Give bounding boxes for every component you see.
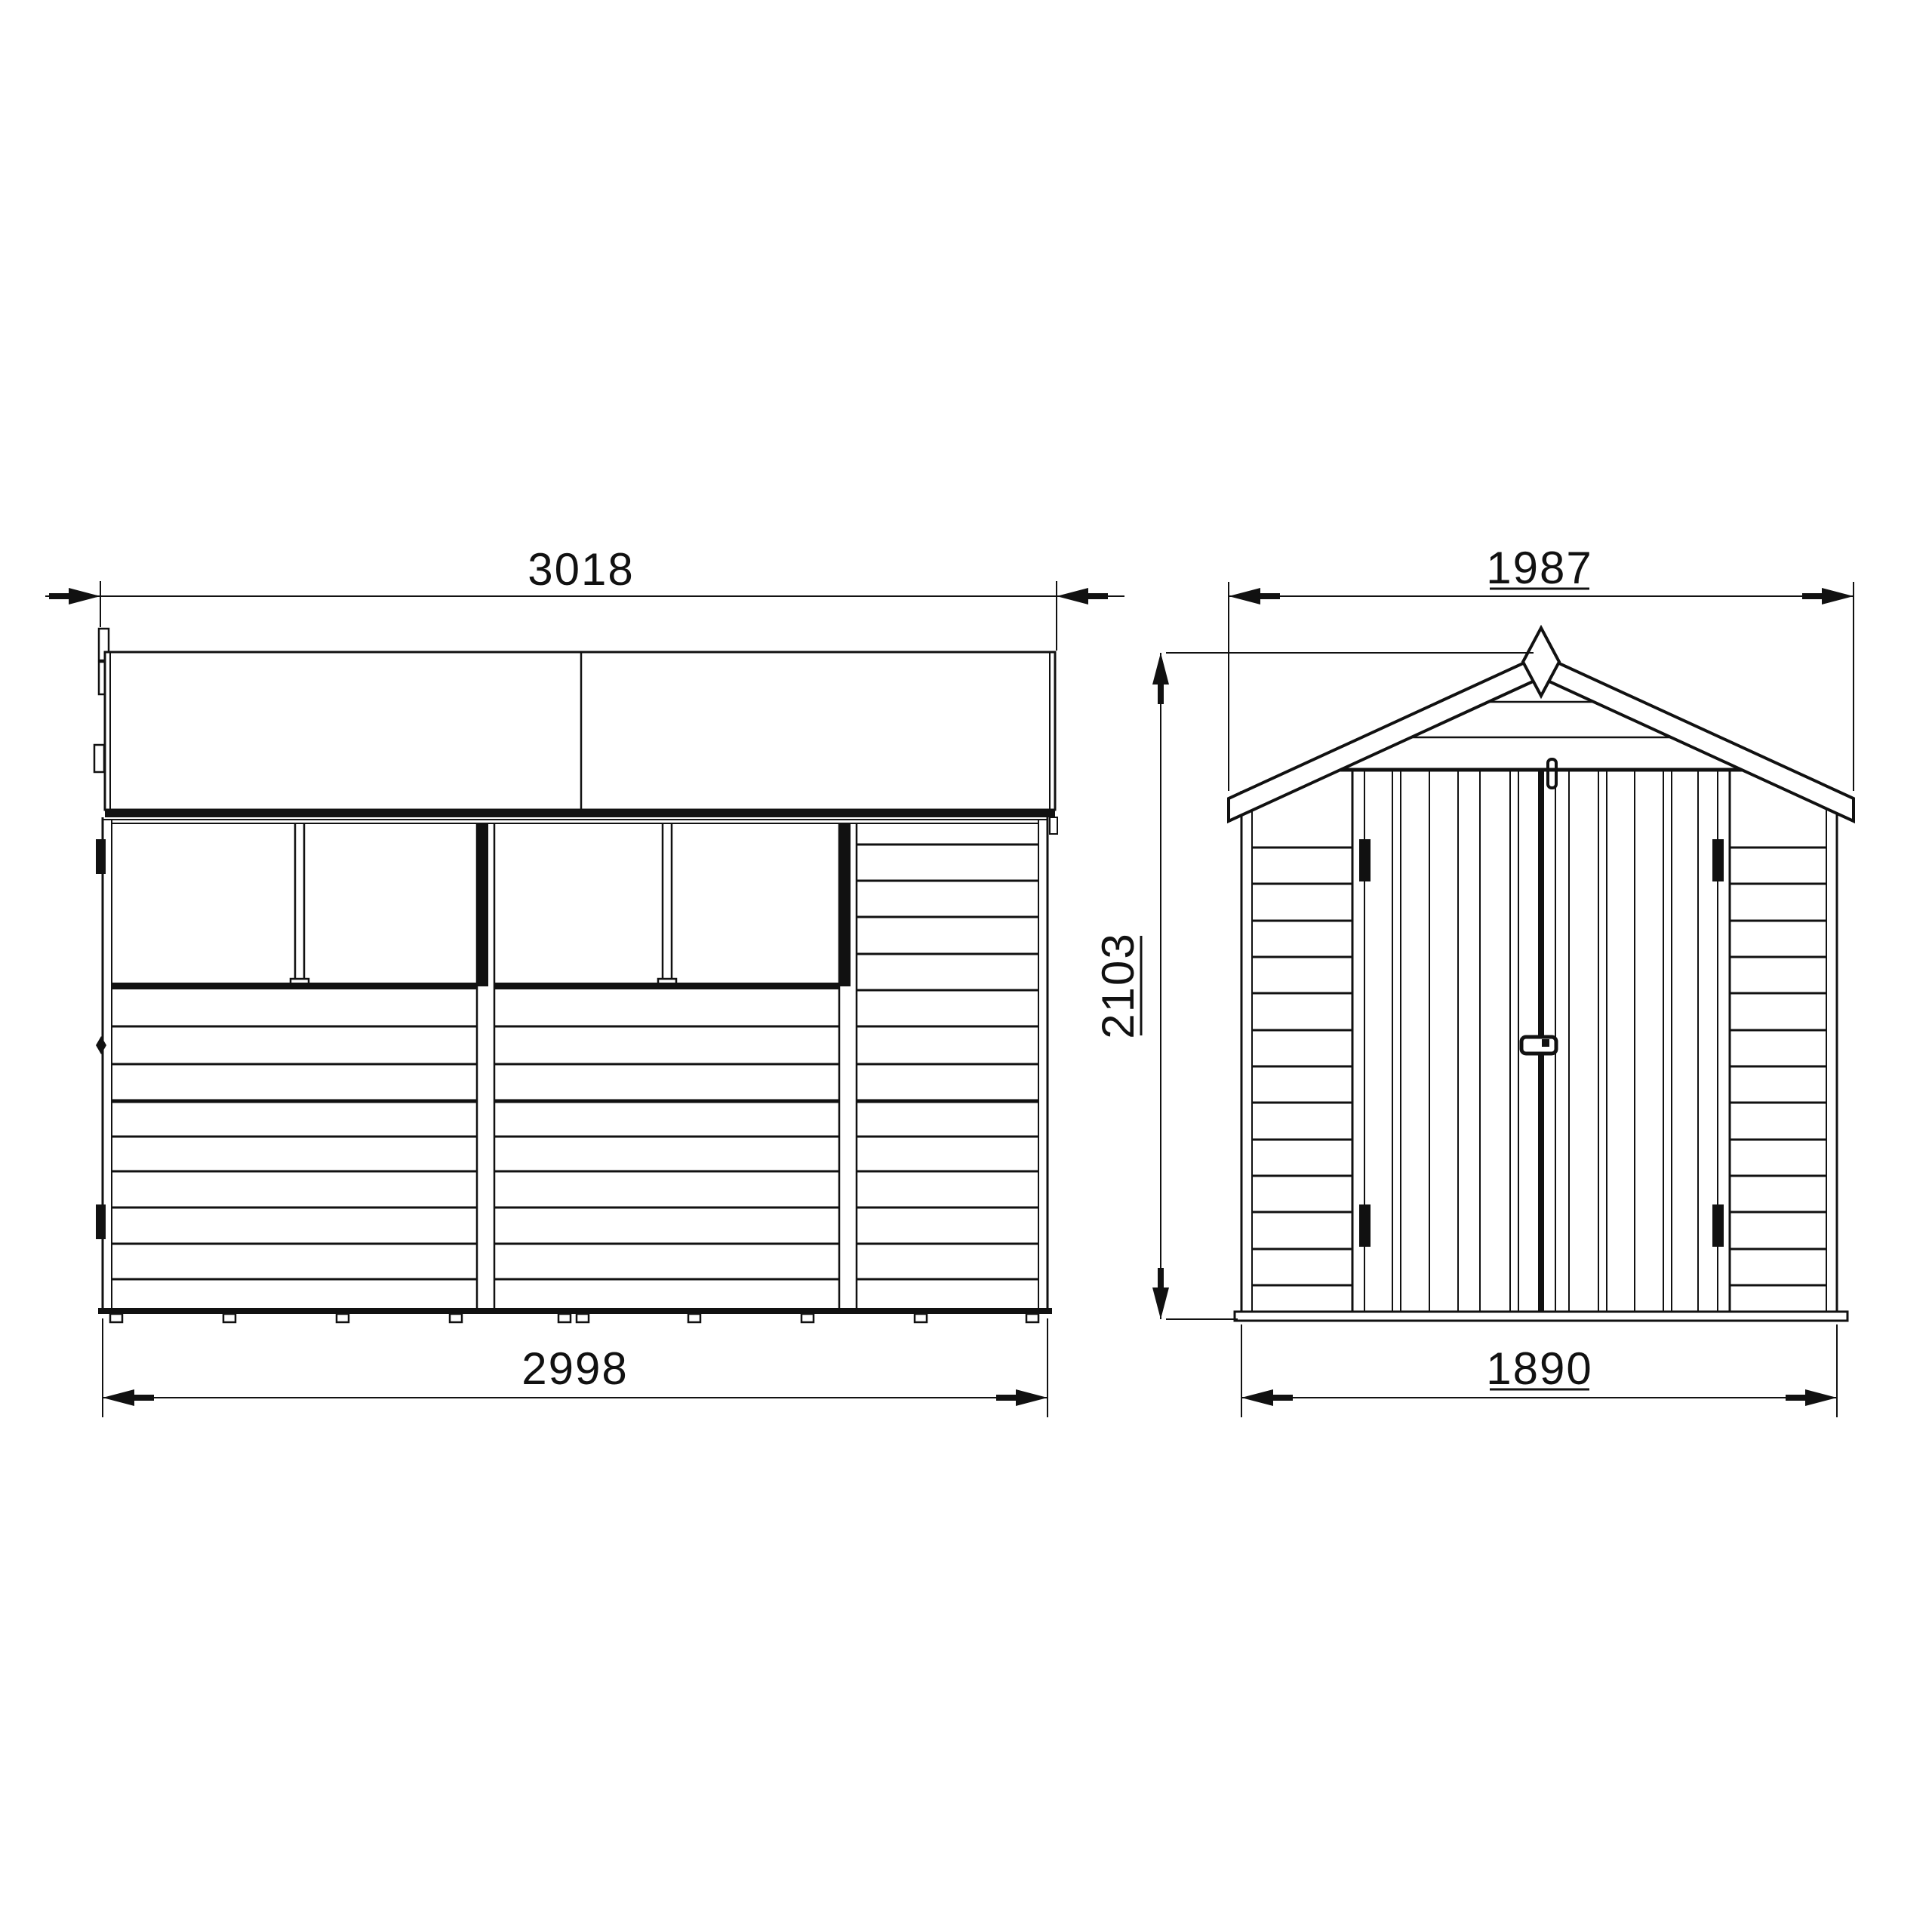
- door-hinge-right-bottom: [1712, 1204, 1724, 1247]
- window-sill-bay2: [494, 983, 839, 989]
- door-hinge-left-bottom: [1359, 1204, 1371, 1247]
- dimension-front-ridge-height: 2103: [1093, 653, 1534, 1319]
- drawing-sheet: 3018: [0, 0, 1932, 1932]
- door-handle-hasp: [1521, 1037, 1556, 1054]
- door-handle-profile: [96, 1036, 106, 1054]
- dimension-side-base-width: 2998: [103, 1318, 1048, 1417]
- cladding-lines-window-bays: [112, 1026, 839, 1279]
- dimension-label-front-base-width: 1890: [1486, 1343, 1592, 1394]
- arrowhead-left-icon: [49, 588, 100, 605]
- shed-technical-drawing: 3018: [0, 0, 1932, 1932]
- panel-cladding-left: [1252, 848, 1352, 1285]
- side-windows: [112, 823, 839, 989]
- arrowhead-right-icon: [1802, 588, 1854, 605]
- door-handle-pin: [1542, 1039, 1549, 1047]
- arrowhead-left-icon: [1241, 1389, 1293, 1406]
- hinge-bottom-profile: [96, 1204, 106, 1239]
- cladding-lines-rear-bay: [857, 844, 1038, 1279]
- side-wall: [98, 817, 1052, 1314]
- roof-side: [105, 652, 1057, 834]
- dimension-side-roof-width: 3018: [45, 544, 1124, 651]
- bay-divider-posts: [477, 823, 857, 1311]
- base-rail: [98, 1308, 1052, 1314]
- arrowhead-left-icon: [1229, 588, 1280, 605]
- dimension-label-side-base-width: 2998: [521, 1343, 628, 1394]
- side-elevation-view: 3018: [45, 544, 1124, 1417]
- arrowhead-right-icon: [996, 1389, 1048, 1406]
- dimension-label-front-roof-width: 1987: [1486, 543, 1592, 593]
- front-base-rail: [1235, 1312, 1847, 1321]
- floor-bearer-feet: [110, 1314, 1038, 1322]
- arrowhead-up-icon: [1152, 653, 1169, 704]
- door-head-trim-profile: [94, 745, 104, 772]
- panel-cladding-right: [1730, 848, 1826, 1285]
- ridge-diamond-finial: [1523, 628, 1559, 696]
- door-top-latch-bolt: [1548, 759, 1556, 788]
- dimension-front-base-width: 1890: [1241, 1324, 1837, 1417]
- window-mullion-bay1: [295, 823, 304, 979]
- dimension-label-front-ridge-height: 2103: [1093, 932, 1143, 1038]
- door-hinge-right-top: [1712, 839, 1724, 881]
- door-hinge-left-top: [1359, 839, 1371, 881]
- hinge-top-profile: [96, 839, 106, 874]
- arrowhead-down-icon: [1152, 1268, 1169, 1319]
- double-doors: [1352, 759, 1730, 1312]
- arrowhead-right-icon: [1786, 1389, 1837, 1406]
- dimension-label-side-roof-width: 3018: [528, 544, 634, 595]
- window-mullion-bay2: [663, 823, 672, 979]
- side-cladding: [112, 844, 1038, 1279]
- arrowhead-right-icon: [1057, 588, 1108, 605]
- fascia-return-tab: [1050, 817, 1057, 834]
- window-sill-bay1: [112, 983, 477, 989]
- roof-panel: [105, 652, 1055, 810]
- front-elevation-view: 1987: [1093, 543, 1854, 1417]
- eaves-band: [105, 810, 1055, 817]
- arrowhead-left-icon: [103, 1389, 154, 1406]
